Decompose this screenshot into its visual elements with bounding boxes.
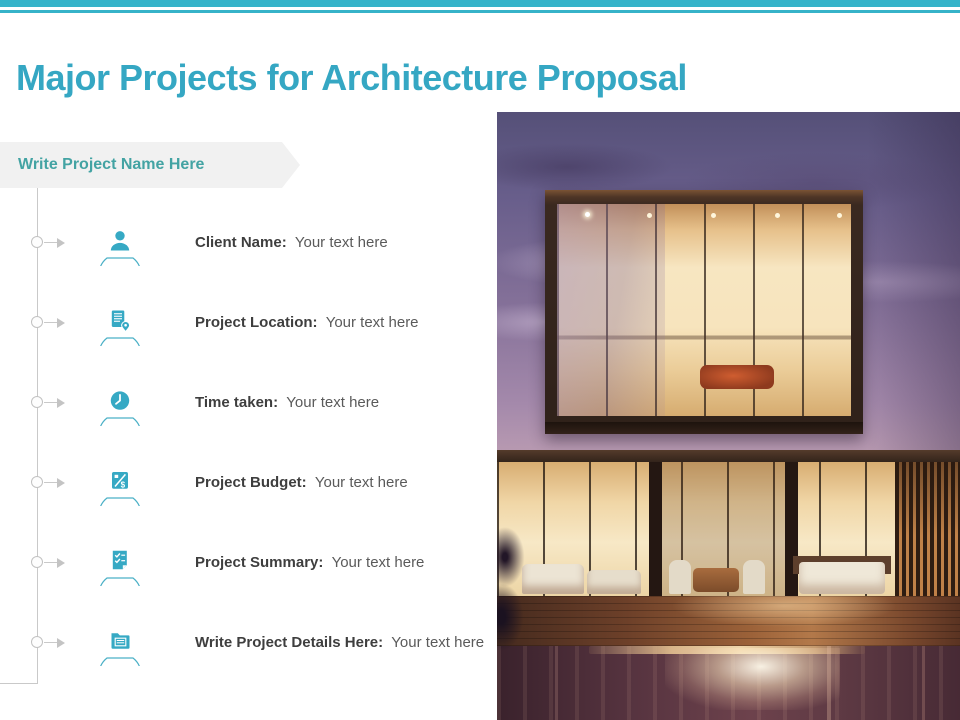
project-name-banner: Write Project Name Here <box>0 142 300 188</box>
photo-sofa <box>587 570 641 594</box>
arrow-right-icon <box>57 398 65 408</box>
photo-water-reflection <box>922 646 925 720</box>
field-row-project-budget: $ Project Budget: Your text here <box>0 460 497 506</box>
location-document-icon <box>97 300 143 346</box>
field-placeholder: Your text here <box>295 234 388 251</box>
field-text: Write Project Details Here: Your text he… <box>195 620 484 666</box>
slide: Major Projects for Architecture Proposal… <box>0 0 960 720</box>
photo-dining-table <box>693 568 739 592</box>
photo-bed <box>799 562 885 594</box>
field-label: Client Name: <box>195 234 287 251</box>
timeline-connector <box>44 322 57 323</box>
field-row-project-location: Project Location: Your text here <box>0 300 497 346</box>
photo-upper-floor <box>545 190 863 434</box>
field-text: Time taken: Your text here <box>195 380 379 426</box>
arrow-right-icon <box>57 238 65 248</box>
field-row-project-summary: Project Summary: Your text here <box>0 540 497 586</box>
details-folder-icon <box>97 620 143 666</box>
photo-lower-floor <box>497 450 960 596</box>
timeline-node-dot <box>31 476 43 488</box>
field-label: Time taken: <box>195 394 278 411</box>
field-placeholder: Your text here <box>286 394 379 411</box>
arrow-right-icon <box>57 638 65 648</box>
clock-icon <box>97 380 143 426</box>
svg-text:$: $ <box>121 481 126 490</box>
arrow-right-icon <box>57 558 65 568</box>
timeline-foot-line <box>0 683 38 684</box>
photo-window-reflection <box>557 204 665 416</box>
arrow-right-icon <box>57 478 65 488</box>
timeline-node-dot <box>31 636 43 648</box>
photo-pillar <box>785 462 798 596</box>
photo-wooden-deck <box>497 596 960 646</box>
timeline-connector <box>44 562 57 563</box>
project-name-banner-label: Write Project Name Here <box>18 142 204 188</box>
timeline-connector <box>44 482 57 483</box>
timeline-node-dot <box>31 396 43 408</box>
field-label: Project Summary: <box>195 554 323 571</box>
field-label: Project Budget: <box>195 474 307 491</box>
field-text: Project Location: Your text here <box>195 300 419 346</box>
photo-chair <box>669 560 691 594</box>
summary-checklist-icon <box>97 540 143 586</box>
photo-interior-decor <box>700 365 774 389</box>
timeline-node-dot <box>31 316 43 328</box>
timeline-connector <box>44 402 57 403</box>
field-placeholder: Your text here <box>326 314 419 331</box>
field-label: Project Location: <box>195 314 318 331</box>
photo-louvered-screen <box>895 462 960 596</box>
field-placeholder: Your text here <box>332 554 425 571</box>
field-row-project-details: Write Project Details Here: Your text he… <box>0 620 497 666</box>
field-text: Project Summary: Your text here <box>195 540 424 586</box>
photo-water-reflection <box>827 646 831 720</box>
field-placeholder: Your text here <box>315 474 408 491</box>
field-row-time-taken: Time taken: Your text here <box>0 380 497 426</box>
photo-pillar <box>649 462 662 596</box>
page-title: Major Projects for Architecture Proposal <box>16 57 687 99</box>
field-label: Write Project Details Here: <box>195 634 383 651</box>
field-placeholder: Your text here <box>391 634 484 651</box>
field-text: Client Name: Your text here <box>195 220 388 266</box>
timeline-connector <box>44 642 57 643</box>
photo-chair <box>743 560 765 594</box>
house-photo <box>497 112 960 720</box>
photo-water-reflection <box>555 646 558 720</box>
photo-pool-light <box>665 648 840 710</box>
client-person-icon <box>97 220 143 266</box>
top-accent-bar <box>0 0 960 7</box>
timeline-connector <box>44 242 57 243</box>
photo-ceiling-lights <box>585 212 590 217</box>
photo-balcony <box>545 422 863 434</box>
field-row-client-name: Client Name: Your text here <box>0 220 497 266</box>
top-accent-line <box>0 10 960 13</box>
timeline-node-dot <box>31 556 43 568</box>
photo-foliage <box>497 512 535 662</box>
budget-calculator-icon: $ <box>97 460 143 506</box>
field-text: Project Budget: Your text here <box>195 460 408 506</box>
timeline-node-dot <box>31 236 43 248</box>
arrow-right-icon <box>57 318 65 328</box>
photo-roof-fascia <box>497 450 960 462</box>
photo-pool <box>497 646 960 720</box>
